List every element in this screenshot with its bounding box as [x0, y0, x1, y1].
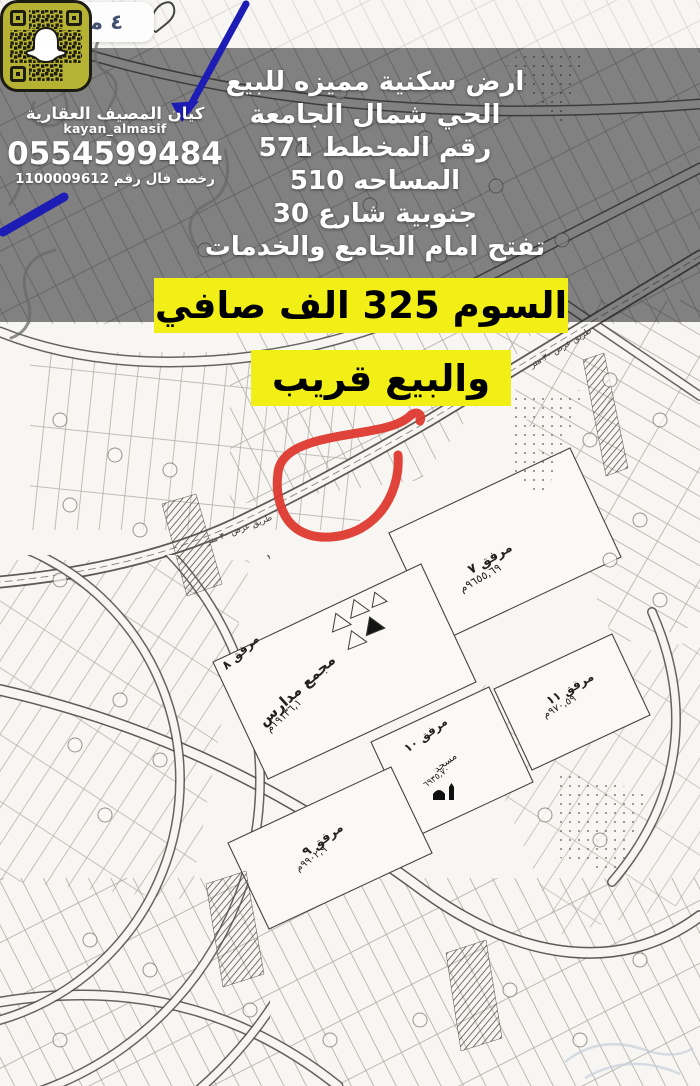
real-estate-listing-image: مرفق ٧ ٩٦٥٥,٦٩م مرفق ٨ مجمع مدارس ١٩١٣٦,…	[0, 0, 700, 1086]
red-circle-annotation	[0, 0, 700, 1086]
